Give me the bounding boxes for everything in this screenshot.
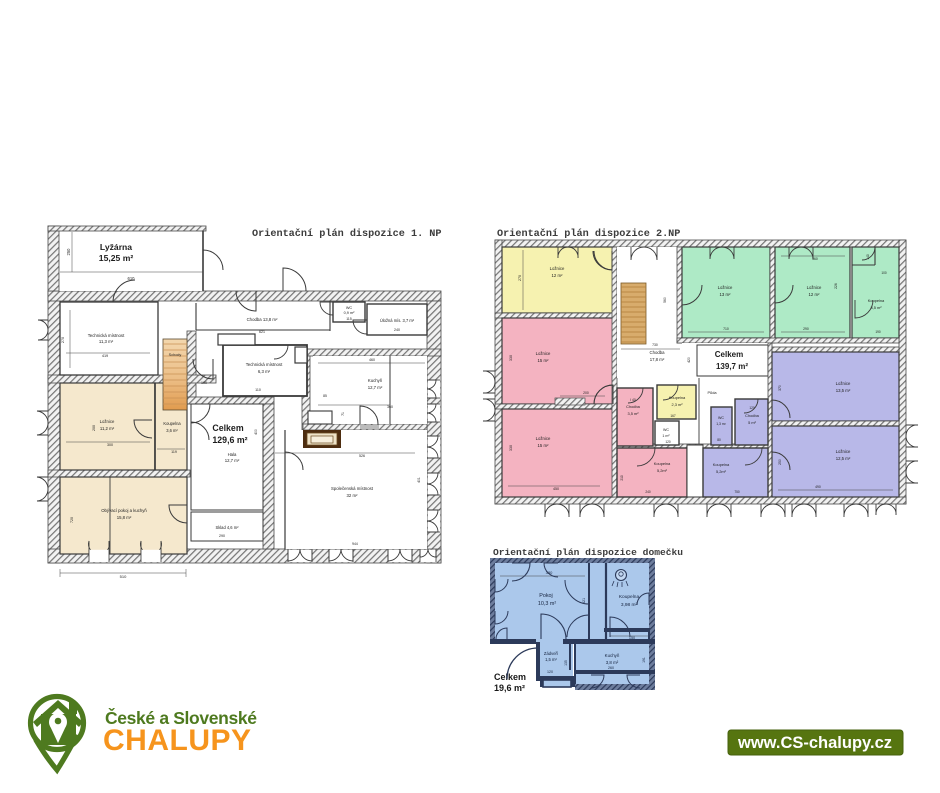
- svg-text:Úložná mís. 3,7 m²: Úložná mís. 3,7 m²: [380, 318, 415, 323]
- svg-text:720: 720: [70, 517, 74, 523]
- svg-text:Ložnice: Ložnice: [836, 381, 851, 386]
- svg-text:Kuchyň: Kuchyň: [368, 378, 383, 383]
- svg-text:Ložnice: Ložnice: [100, 419, 115, 424]
- svg-text:300: 300: [107, 443, 113, 447]
- svg-text:10,3 m²: 10,3 m²: [538, 601, 556, 607]
- svg-text:Půda: Půda: [707, 390, 717, 395]
- svg-text:6,3 m²: 6,3 m²: [258, 369, 271, 374]
- svg-text:Koupelna: Koupelna: [713, 462, 730, 467]
- svg-text:CHALUPY: CHALUPY: [103, 724, 252, 757]
- svg-text:290: 290: [803, 327, 809, 331]
- svg-text:190: 190: [875, 330, 881, 334]
- svg-text:0,9 m²: 0,9 m²: [344, 311, 355, 315]
- svg-text:250: 250: [66, 248, 71, 256]
- svg-text:526: 526: [359, 454, 365, 458]
- svg-text:3,5 m²: 3,5 m²: [627, 411, 639, 416]
- svg-text:419: 419: [102, 354, 108, 358]
- svg-text:330: 330: [509, 445, 513, 451]
- svg-text:WC: WC: [346, 306, 353, 310]
- svg-text:490: 490: [815, 485, 821, 489]
- svg-text:370: 370: [778, 385, 782, 391]
- svg-text:139,7 m²: 139,7 m²: [716, 362, 748, 371]
- svg-text:Koupelna: Koupelna: [654, 461, 671, 466]
- svg-text:32 m²: 32 m²: [347, 493, 359, 498]
- svg-text:129,6 m²: 129,6 m²: [212, 435, 247, 445]
- svg-text:15,8 m²: 15,8 m²: [117, 515, 132, 520]
- svg-text:120: 120: [749, 406, 755, 410]
- svg-text:15,25 m²: 15,25 m²: [99, 253, 134, 263]
- svg-text:200: 200: [583, 391, 589, 395]
- svg-text:3,8 m²: 3,8 m²: [606, 660, 619, 665]
- svg-text:WC: WC: [663, 428, 669, 432]
- svg-text:15 m²: 15 m²: [538, 443, 550, 448]
- svg-text:200: 200: [92, 425, 96, 431]
- svg-text:Ložnice: Ložnice: [836, 449, 851, 454]
- svg-text:420: 420: [687, 357, 691, 363]
- svg-text:Ložnice: Ložnice: [550, 266, 565, 271]
- svg-text:Koupelna: Koupelna: [868, 298, 885, 303]
- svg-text:120: 120: [547, 670, 553, 674]
- svg-text:Zádveří: Zádveří: [544, 651, 559, 656]
- svg-text:226: 226: [834, 283, 838, 289]
- svg-text:71: 71: [341, 412, 345, 416]
- svg-text:710: 710: [723, 327, 729, 331]
- svg-text:Ložnice: Ložnice: [807, 285, 822, 290]
- svg-text:3,6 m²: 3,6 m²: [166, 428, 178, 433]
- svg-text:Hala: Hala: [228, 452, 237, 457]
- svg-text:1,5 m²: 1,5 m²: [545, 657, 557, 662]
- svg-text:944: 944: [352, 542, 358, 546]
- svg-text:1,3 m²: 1,3 m²: [716, 422, 726, 426]
- svg-text:3,98 m²: 3,98 m²: [621, 602, 638, 608]
- svg-text:250: 250: [778, 459, 782, 465]
- svg-text:1 m²: 1 m²: [662, 434, 670, 438]
- svg-text:560: 560: [663, 297, 667, 303]
- svg-text:11,2 m²: 11,2 m²: [100, 426, 115, 431]
- svg-text:270: 270: [518, 275, 522, 281]
- svg-text:13,5 m²: 13,5 m²: [836, 388, 851, 393]
- svg-text:Chodba: Chodba: [649, 350, 665, 355]
- svg-text:13 m²: 13 m²: [720, 292, 732, 297]
- svg-text:WC: WC: [718, 416, 724, 420]
- svg-text:5 m²: 5 m²: [748, 420, 756, 425]
- svg-text:Společenská místnost: Společenská místnost: [331, 486, 374, 491]
- svg-text:Celkem: Celkem: [212, 423, 243, 433]
- svg-text:12,5 m²: 12,5 m²: [836, 456, 851, 461]
- svg-text:12,7 m²: 12,7 m²: [225, 458, 240, 463]
- svg-text:Ložnice: Ložnice: [718, 285, 733, 290]
- svg-text:290: 290: [219, 534, 225, 538]
- svg-text:Obývací pokoj a kuchyň: Obývací pokoj a kuchyň: [101, 508, 147, 513]
- svg-text:270: 270: [61, 337, 65, 343]
- svg-text:Schody: Schody: [169, 353, 182, 357]
- svg-text:Lyžárna: Lyžárna: [100, 242, 132, 252]
- svg-text:110: 110: [255, 388, 261, 392]
- svg-text:260: 260: [608, 666, 614, 670]
- svg-text:Sklad 4,6 m²: Sklad 4,6 m²: [216, 525, 240, 530]
- svg-text:Orientační plán dispozice 1. N: Orientační plán dispozice 1. NP: [252, 228, 442, 240]
- svg-text:2,3 m²: 2,3 m²: [671, 402, 683, 407]
- svg-text:Chodba: Chodba: [626, 404, 640, 409]
- svg-text:115: 115: [346, 317, 352, 321]
- svg-text:85: 85: [323, 394, 327, 398]
- svg-text:240: 240: [394, 328, 400, 332]
- svg-text:750: 750: [734, 490, 740, 494]
- svg-text:19,6 m²: 19,6 m²: [494, 683, 525, 693]
- svg-text:Kuchyň: Kuchyň: [605, 653, 620, 658]
- svg-text:100: 100: [201, 381, 207, 385]
- svg-text:17,8 m²: 17,8 m²: [650, 357, 665, 362]
- svg-text:240: 240: [645, 490, 651, 494]
- svg-text:330: 330: [509, 355, 513, 361]
- svg-text:Celkem: Celkem: [715, 350, 743, 359]
- svg-text:120: 120: [665, 440, 671, 444]
- svg-text:11,3 m²: 11,3 m²: [99, 339, 114, 344]
- svg-text:Orientační plán dispozice dome: Orientační plán dispozice domečku: [493, 547, 683, 558]
- svg-text:167: 167: [670, 414, 676, 418]
- svg-text:5,2m²: 5,2m²: [716, 469, 727, 474]
- svg-text:135: 135: [564, 660, 568, 666]
- svg-text:Ložnice: Ložnice: [536, 351, 551, 356]
- svg-text:Chodba: Chodba: [745, 413, 759, 418]
- svg-text:450: 450: [553, 487, 559, 491]
- svg-text:12,7 m²: 12,7 m²: [368, 385, 383, 390]
- svg-text:460: 460: [369, 358, 375, 362]
- svg-text:www.CS-chalupy.cz: www.CS-chalupy.cz: [737, 734, 892, 752]
- svg-text:15 m²: 15 m²: [538, 358, 550, 363]
- svg-text:Koupelna: Koupelna: [163, 421, 181, 426]
- svg-text:Technická místnost: Technická místnost: [246, 362, 283, 367]
- svg-text:Celkem: Celkem: [494, 672, 526, 682]
- svg-text:401: 401: [417, 477, 421, 483]
- svg-text:Pokoj: Pokoj: [539, 593, 553, 599]
- svg-text:621: 621: [259, 330, 265, 334]
- svg-text:730: 730: [652, 343, 658, 347]
- svg-text:Orientační plán dispozice 2.NP: Orientační plán dispozice 2.NP: [497, 228, 680, 240]
- svg-text:Ložnice: Ložnice: [536, 436, 551, 441]
- svg-text:Chodba 13,8 m²: Chodba 13,8 m²: [247, 317, 278, 322]
- svg-text:5,2m²: 5,2m²: [657, 468, 668, 473]
- svg-text:80: 80: [717, 438, 721, 442]
- svg-text:12 m²: 12 m²: [809, 292, 821, 297]
- svg-text:191: 191: [642, 657, 646, 663]
- svg-text:400: 400: [254, 429, 258, 435]
- svg-text:100: 100: [881, 271, 887, 275]
- svg-text:119: 119: [171, 450, 177, 454]
- svg-text:Koupelna: Koupelna: [619, 594, 640, 600]
- svg-text:Technická místnost: Technická místnost: [88, 333, 125, 338]
- svg-text:12 m²: 12 m²: [552, 273, 564, 278]
- svg-text:510: 510: [120, 574, 127, 579]
- svg-text:210: 210: [620, 475, 624, 481]
